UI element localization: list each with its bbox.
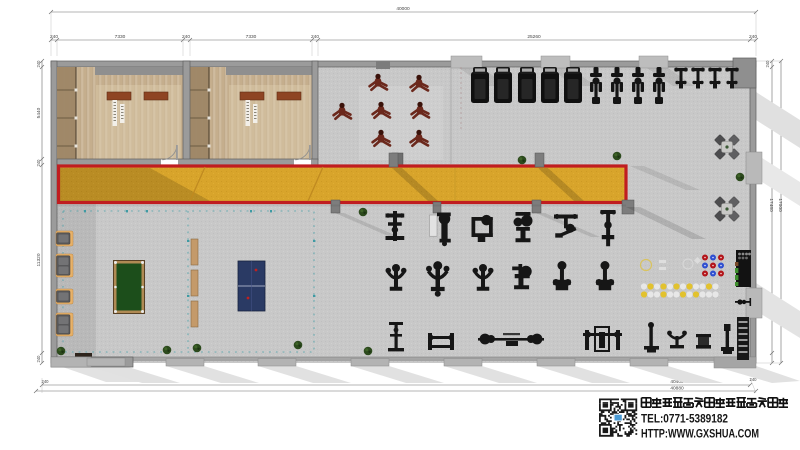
svg-text:17480: 17480: [768, 198, 774, 212]
svg-text:240: 240: [311, 34, 319, 40]
svg-text:40880: 40880: [670, 386, 684, 392]
svg-text:240: 240: [50, 34, 58, 40]
svg-text:240: 240: [182, 34, 190, 40]
svg-text:11320: 11320: [36, 253, 42, 266]
svg-text:40000: 40000: [396, 6, 410, 12]
svg-text:240: 240: [42, 379, 50, 384]
svg-text:240: 240: [36, 159, 41, 167]
svg-text:240: 240: [765, 60, 770, 68]
svg-text:17000: 17000: [777, 198, 783, 212]
svg-text:240: 240: [749, 34, 757, 40]
svg-text:240: 240: [36, 60, 41, 68]
svg-text:7330: 7330: [246, 34, 257, 40]
svg-text:TEL:0771-5389182: TEL:0771-5389182: [641, 412, 728, 426]
svg-text:240: 240: [36, 355, 41, 363]
svg-text:5440: 5440: [36, 107, 42, 118]
svg-text:HTTP:WWW.GXSHUA.COM: HTTP:WWW.GXSHUA.COM: [641, 427, 759, 441]
svg-text:25260: 25260: [527, 34, 541, 40]
svg-text:7330: 7330: [115, 34, 126, 40]
